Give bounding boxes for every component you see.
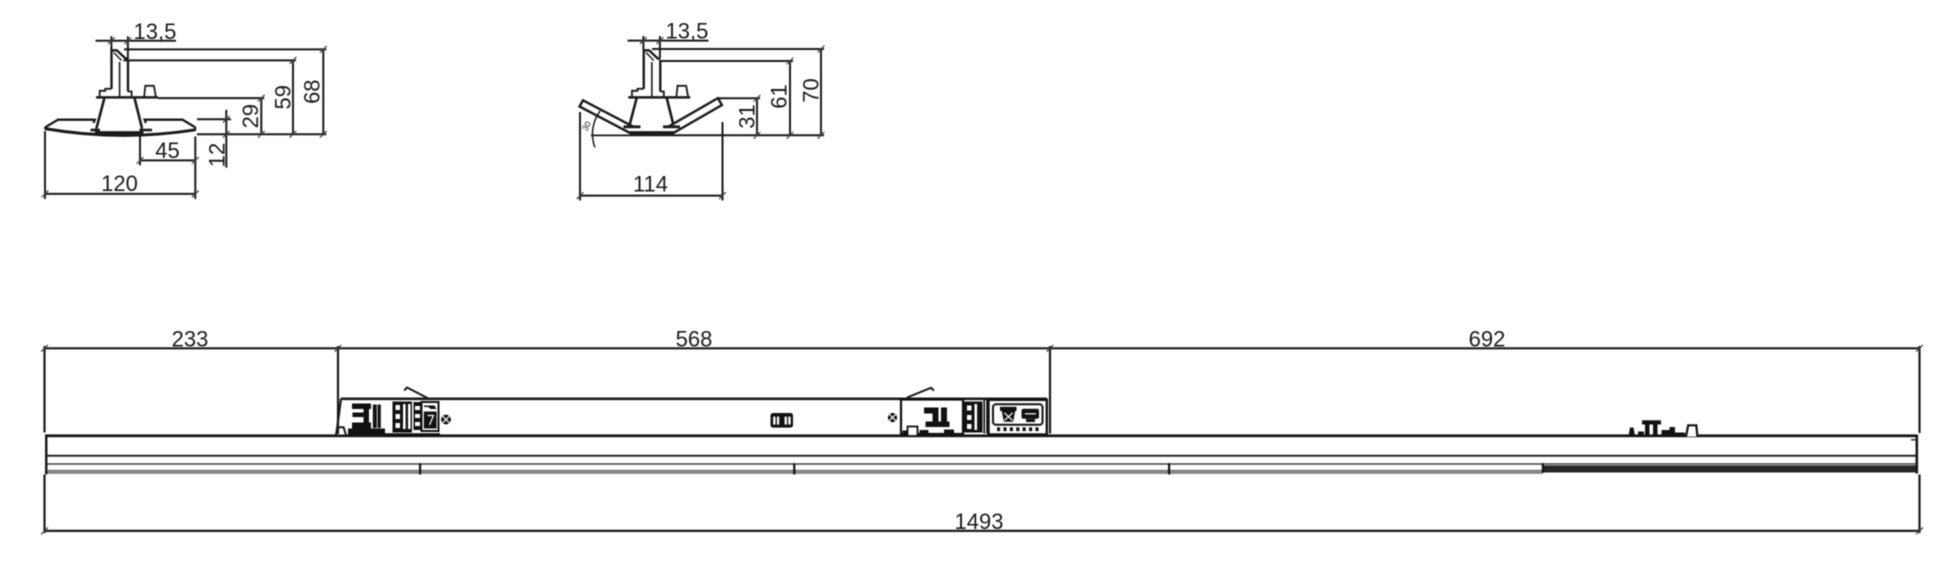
svg-text:1493: 1493 [955,509,1004,534]
svg-text:13,5: 13,5 [134,19,177,44]
svg-text:233: 233 [172,327,209,352]
svg-text:120: 120 [101,171,138,196]
svg-text:29: 29 [238,104,263,128]
svg-text:68: 68 [299,79,324,103]
svg-text:13,5: 13,5 [666,19,709,44]
svg-text:12: 12 [205,143,230,167]
svg-text:692: 692 [1469,327,1506,352]
svg-text:31: 31 [735,104,760,128]
svg-text:70: 70 [799,78,824,102]
svg-text:568: 568 [676,327,713,352]
svg-text:59: 59 [271,85,296,109]
svg-text:61: 61 [767,84,792,108]
svg-text:114: 114 [633,172,668,197]
svg-text:45: 45 [155,138,179,163]
